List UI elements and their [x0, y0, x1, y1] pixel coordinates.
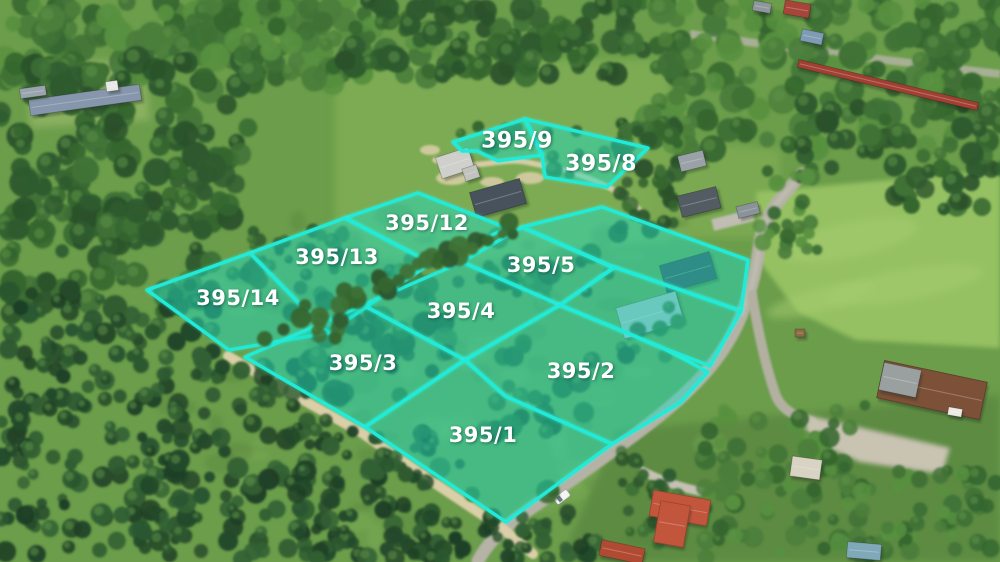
- tree-highlight: [65, 521, 74, 530]
- tree-highlight: [284, 66, 292, 74]
- tree: [725, 476, 741, 492]
- tree: [695, 33, 713, 51]
- tree: [808, 510, 821, 523]
- tree-highlight: [87, 131, 99, 143]
- tree-highlight: [15, 413, 23, 421]
- tree: [911, 471, 928, 488]
- tree: [215, 360, 230, 375]
- sand-patch: [420, 145, 440, 155]
- tree-highlight: [4, 305, 14, 315]
- tree: [9, 168, 39, 198]
- tree-highlight: [758, 448, 763, 453]
- boundary-tree: [351, 286, 364, 299]
- tree: [227, 457, 248, 478]
- tree-highlight: [174, 527, 181, 534]
- tree-highlight: [117, 157, 128, 168]
- tree-highlight: [232, 511, 239, 518]
- tree: [150, 383, 164, 397]
- tree-highlight: [170, 407, 177, 414]
- tree: [803, 228, 815, 240]
- tree-highlight: [164, 200, 170, 206]
- tree: [217, 95, 237, 115]
- tree: [329, 332, 342, 345]
- tree-highlight: [144, 459, 149, 464]
- tree-highlight: [96, 295, 101, 300]
- tree-highlight: [9, 379, 15, 385]
- tree: [110, 201, 127, 218]
- tree: [565, 24, 581, 40]
- tree-highlight: [652, 0, 665, 12]
- tree-highlight: [287, 477, 294, 484]
- tree: [727, 438, 746, 457]
- tree: [25, 287, 38, 300]
- tree: [321, 437, 340, 456]
- tree-highlight: [530, 520, 535, 525]
- tree-highlight: [60, 412, 67, 419]
- tree: [193, 350, 212, 369]
- tree-highlight: [30, 470, 35, 475]
- tree: [115, 427, 130, 442]
- tree-highlight: [892, 126, 903, 137]
- tree: [66, 415, 80, 429]
- tree-highlight: [542, 66, 551, 75]
- tree-highlight: [985, 92, 991, 98]
- tree: [655, 164, 666, 175]
- tree-highlight: [161, 352, 168, 359]
- tree: [234, 45, 252, 63]
- tree: [198, 407, 211, 420]
- tree: [398, 466, 414, 482]
- tree-highlight: [246, 477, 256, 487]
- tree-highlight: [91, 366, 97, 372]
- tree-highlight: [288, 400, 294, 406]
- tree-highlight: [830, 516, 835, 521]
- tree-highlight: [845, 422, 852, 429]
- tree: [139, 220, 161, 242]
- tree: [202, 368, 212, 378]
- tree: [824, 160, 839, 175]
- tree-highlight: [389, 51, 400, 62]
- tree: [35, 505, 50, 520]
- tree-highlight: [102, 375, 107, 380]
- plot-label-395-12: 395/12: [385, 211, 469, 235]
- tree-highlight: [100, 7, 112, 19]
- tree: [973, 198, 991, 216]
- tree-highlight: [126, 331, 131, 336]
- tree-highlight: [919, 139, 929, 149]
- tree: [933, 467, 949, 483]
- tree: [808, 526, 820, 538]
- tree: [360, 459, 378, 477]
- boundary-tree: [433, 252, 443, 262]
- tree: [58, 176, 72, 190]
- tree: [855, 503, 870, 518]
- tree: [812, 245, 822, 255]
- blue-roof-shed: [846, 542, 884, 562]
- tree: [622, 177, 633, 188]
- tree-highlight: [134, 349, 140, 355]
- tree-highlight: [335, 434, 340, 439]
- tree-highlight: [501, 44, 512, 55]
- tree: [960, 142, 984, 166]
- tree-highlight: [100, 394, 106, 400]
- tree: [220, 490, 232, 502]
- tree: [783, 479, 797, 493]
- tree: [981, 539, 999, 557]
- tree: [363, 31, 376, 44]
- tree: [201, 43, 230, 72]
- tree-highlight: [420, 532, 426, 538]
- tree: [515, 523, 530, 538]
- tree: [785, 525, 806, 546]
- tree-highlight: [797, 138, 805, 146]
- tree: [162, 433, 173, 444]
- tree-highlight: [798, 95, 808, 105]
- tree: [623, 505, 634, 516]
- tree-highlight: [948, 70, 956, 78]
- tree: [13, 300, 28, 315]
- plot-label-395-13: 395/13: [295, 245, 379, 269]
- tree-highlight: [263, 394, 270, 401]
- tree: [49, 362, 63, 376]
- tree-highlight: [624, 34, 635, 45]
- tree: [455, 549, 465, 559]
- tree: [818, 111, 839, 132]
- tree: [192, 220, 212, 240]
- tree: [896, 22, 922, 48]
- tree: [268, 17, 287, 36]
- tree-highlight: [171, 455, 180, 464]
- tree-highlight: [257, 528, 262, 533]
- tree: [698, 441, 713, 456]
- tree: [304, 439, 315, 450]
- boundary-tree: [412, 258, 424, 270]
- tree-highlight: [129, 457, 135, 463]
- aerial-scene-svg: 395/9395/8395/12395/13395/14395/5395/439…: [0, 0, 1000, 562]
- tree: [658, 32, 673, 47]
- tree-highlight: [523, 544, 528, 549]
- tree: [267, 500, 285, 518]
- tree: [860, 400, 871, 411]
- tree: [212, 375, 222, 385]
- tree: [12, 387, 24, 399]
- boundary-tree: [331, 296, 350, 315]
- tree-highlight: [5, 326, 12, 333]
- tree-highlight: [73, 224, 84, 235]
- tree: [313, 12, 333, 32]
- tree-highlight: [945, 4, 953, 12]
- tree-highlight: [377, 18, 383, 24]
- tree-highlight: [888, 156, 898, 166]
- tree: [108, 456, 127, 475]
- tree-highlight: [457, 130, 462, 135]
- tree-highlight: [756, 472, 765, 481]
- tree: [205, 387, 220, 402]
- tree: [258, 468, 280, 490]
- tree: [140, 476, 159, 495]
- tree-highlight: [152, 532, 162, 542]
- tree: [311, 524, 322, 535]
- tree: [881, 522, 894, 535]
- tree-highlight: [525, 52, 534, 61]
- tree-highlight: [158, 110, 167, 119]
- tree-highlight: [106, 423, 111, 428]
- tree: [769, 445, 788, 464]
- tree: [754, 234, 771, 251]
- tree-highlight: [346, 38, 356, 48]
- tree-highlight: [105, 240, 112, 247]
- tree: [197, 153, 226, 182]
- tree: [573, 539, 589, 555]
- tree-highlight: [452, 519, 458, 525]
- tree: [657, 51, 685, 79]
- tree-highlight: [246, 417, 254, 425]
- construction-foundation: [789, 456, 824, 483]
- grass-patch: [367, 523, 383, 550]
- tree-highlight: [249, 236, 253, 240]
- tree: [744, 13, 763, 32]
- tree-highlight: [63, 347, 72, 356]
- tree-highlight: [974, 123, 981, 130]
- tree-highlight: [742, 69, 750, 77]
- tree-highlight: [478, 45, 486, 53]
- tree: [668, 88, 685, 105]
- tree: [396, 497, 412, 513]
- tree: [668, 201, 679, 212]
- tree: [297, 537, 312, 552]
- tree: [197, 433, 213, 449]
- tree: [732, 86, 755, 109]
- tree: [761, 502, 774, 515]
- tree-highlight: [107, 432, 114, 439]
- tree-highlight: [78, 400, 84, 406]
- tree-highlight: [768, 40, 777, 49]
- tree: [618, 189, 630, 201]
- tree: [742, 461, 753, 472]
- tree: [380, 458, 395, 473]
- tree: [125, 198, 150, 223]
- tree: [137, 432, 147, 442]
- tree: [963, 174, 980, 191]
- tree-highlight: [618, 454, 624, 460]
- tree-highlight: [94, 506, 104, 516]
- tree: [655, 177, 668, 190]
- boundary-tree: [257, 331, 272, 346]
- tree: [778, 245, 792, 259]
- tree: [713, 438, 725, 450]
- tree: [168, 496, 180, 508]
- tree: [348, 20, 363, 35]
- tree: [951, 116, 973, 138]
- tree-highlight: [65, 472, 74, 481]
- tree-highlight: [619, 7, 627, 15]
- tree: [638, 178, 648, 188]
- tree-highlight: [30, 547, 38, 555]
- tree-highlight: [80, 292, 91, 303]
- tree: [16, 506, 35, 525]
- tree: [335, 50, 355, 70]
- tree-highlight: [388, 551, 397, 560]
- tree: [217, 194, 240, 217]
- tree-highlight: [341, 526, 346, 531]
- tree: [84, 194, 101, 211]
- tree: [740, 472, 755, 487]
- tree: [14, 123, 30, 139]
- tree: [718, 404, 731, 417]
- tree: [948, 542, 962, 556]
- tree-highlight: [25, 442, 33, 450]
- tree-highlight: [949, 531, 954, 536]
- tree-highlight: [117, 73, 125, 81]
- tree: [330, 537, 345, 552]
- tree: [159, 511, 169, 521]
- tree-highlight: [113, 314, 120, 321]
- tree: [839, 41, 868, 70]
- tree: [44, 195, 64, 215]
- tree: [762, 165, 773, 176]
- tree: [938, 485, 950, 497]
- tree-highlight: [823, 451, 831, 459]
- tree: [294, 527, 304, 537]
- tree-highlight: [459, 33, 465, 39]
- tree: [19, 460, 29, 470]
- tree: [104, 112, 124, 132]
- tree: [955, 466, 970, 481]
- tree-highlight: [34, 228, 44, 238]
- tree: [333, 313, 349, 329]
- tree-highlight: [832, 406, 838, 412]
- tree-highlight: [140, 389, 147, 396]
- tree: [301, 66, 327, 92]
- tree-highlight: [970, 468, 979, 477]
- tree-highlight: [111, 348, 119, 356]
- tree: [637, 469, 649, 481]
- tree: [781, 219, 792, 230]
- tree-highlight: [322, 40, 328, 46]
- tree: [696, 109, 718, 131]
- tree: [196, 184, 213, 201]
- tree-highlight: [179, 216, 188, 225]
- tree: [725, 495, 741, 511]
- plot-label-395-1: 395/1: [449, 423, 518, 447]
- tree: [133, 357, 149, 373]
- tree-highlight: [699, 533, 708, 542]
- tree-highlight: [346, 510, 352, 516]
- tree-highlight: [294, 424, 299, 429]
- tree: [503, 539, 514, 550]
- tree: [194, 544, 208, 558]
- tree-highlight: [38, 208, 45, 215]
- tree-highlight: [830, 36, 837, 43]
- tree: [6, 16, 22, 32]
- plot-label-395-2: 395/2: [547, 359, 616, 383]
- tree-highlight: [43, 338, 48, 343]
- aerial-plot-map: 395/9395/8395/12395/13395/14395/5395/439…: [0, 0, 1000, 562]
- tree-highlight: [39, 360, 46, 367]
- tree-highlight: [60, 138, 70, 148]
- tree: [223, 11, 238, 26]
- tree: [619, 122, 634, 137]
- tree: [108, 532, 126, 550]
- tree-highlight: [719, 453, 725, 459]
- tree-highlight: [86, 65, 98, 77]
- tree-highlight: [376, 488, 382, 494]
- tree: [775, 546, 785, 556]
- tree-highlight: [707, 75, 716, 84]
- tree-highlight: [589, 536, 597, 544]
- tree-highlight: [44, 522, 52, 530]
- tree-highlight: [627, 528, 631, 532]
- tree: [753, 219, 767, 233]
- tree: [31, 57, 52, 78]
- tree: [186, 14, 201, 29]
- plot-label-395-4: 395/4: [427, 299, 496, 323]
- tree-highlight: [170, 160, 180, 170]
- boundary-tree: [392, 274, 405, 287]
- tree: [842, 497, 855, 510]
- tree-highlight: [231, 136, 238, 143]
- tree: [239, 118, 258, 137]
- tree-highlight: [16, 139, 24, 147]
- tree-highlight: [128, 266, 139, 277]
- tree-highlight: [164, 545, 169, 550]
- tree: [934, 520, 946, 532]
- tree-highlight: [199, 126, 207, 134]
- plot-label-395-8: 395/8: [565, 152, 637, 177]
- tree: [158, 5, 174, 21]
- boundary-tree: [482, 235, 494, 247]
- tree: [768, 206, 782, 220]
- tree-highlight: [959, 512, 967, 520]
- tree: [632, 125, 644, 137]
- tree-highlight: [148, 468, 156, 476]
- tree: [157, 419, 173, 435]
- tree: [287, 484, 306, 503]
- tree-highlight: [634, 458, 639, 463]
- tree-highlight: [385, 450, 390, 455]
- tree-highlight: [773, 177, 778, 182]
- tree-highlight: [2, 249, 11, 258]
- tree: [72, 157, 100, 185]
- tree-highlight: [299, 466, 305, 472]
- tree-highlight: [183, 196, 191, 204]
- tree: [143, 158, 171, 186]
- tree: [211, 428, 231, 448]
- tree: [839, 461, 850, 472]
- tree: [330, 466, 342, 478]
- tree-highlight: [665, 129, 673, 137]
- tree: [132, 520, 151, 539]
- tree: [932, 159, 951, 178]
- tree-highlight: [364, 56, 371, 63]
- tree: [320, 511, 339, 530]
- tree: [192, 68, 215, 91]
- tree-highlight: [41, 8, 53, 20]
- tree: [423, 510, 440, 527]
- tree: [46, 450, 61, 465]
- tree: [113, 390, 126, 403]
- tree: [204, 472, 215, 483]
- tree: [374, 501, 392, 519]
- tree: [12, 197, 37, 222]
- tree-highlight: [830, 133, 838, 141]
- tree: [218, 531, 238, 551]
- boundary-tree: [500, 213, 519, 232]
- tree: [712, 519, 729, 536]
- tree: [65, 323, 79, 337]
- tree-highlight: [98, 325, 108, 335]
- tree: [830, 534, 850, 554]
